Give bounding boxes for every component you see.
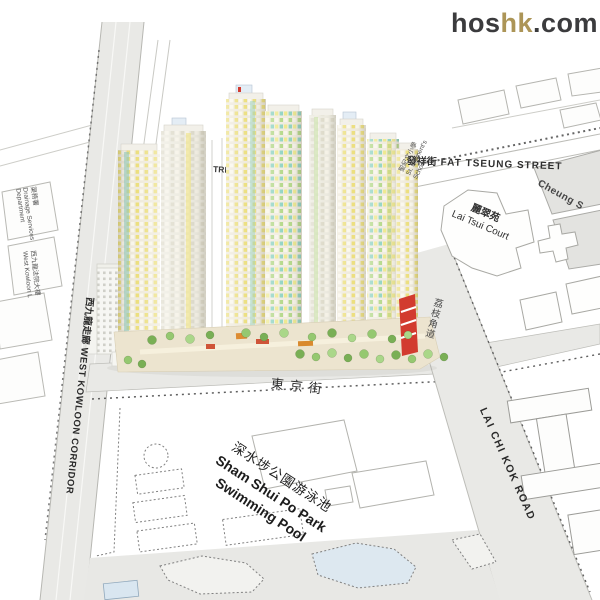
logo-part-dark-2: .com bbox=[533, 8, 598, 38]
tower-block-3 bbox=[226, 85, 266, 348]
red-accent-feature bbox=[399, 294, 418, 356]
tower-block-6 bbox=[337, 112, 366, 348]
tower-block-2 bbox=[161, 118, 206, 352]
tower-block-1 bbox=[118, 144, 160, 352]
hoshk-logo[interactable]: hoshk.com bbox=[451, 8, 598, 39]
map-screenshot: TREET bbox=[0, 0, 600, 600]
development-render bbox=[86, 85, 448, 377]
logo-part-gold: hk bbox=[501, 8, 534, 38]
tower-block-4 bbox=[265, 105, 302, 348]
logo-part-dark-1: hos bbox=[451, 8, 501, 38]
small-pool-shape bbox=[103, 580, 138, 599]
north-blocks bbox=[452, 68, 600, 128]
tower-block-5 bbox=[309, 109, 336, 346]
